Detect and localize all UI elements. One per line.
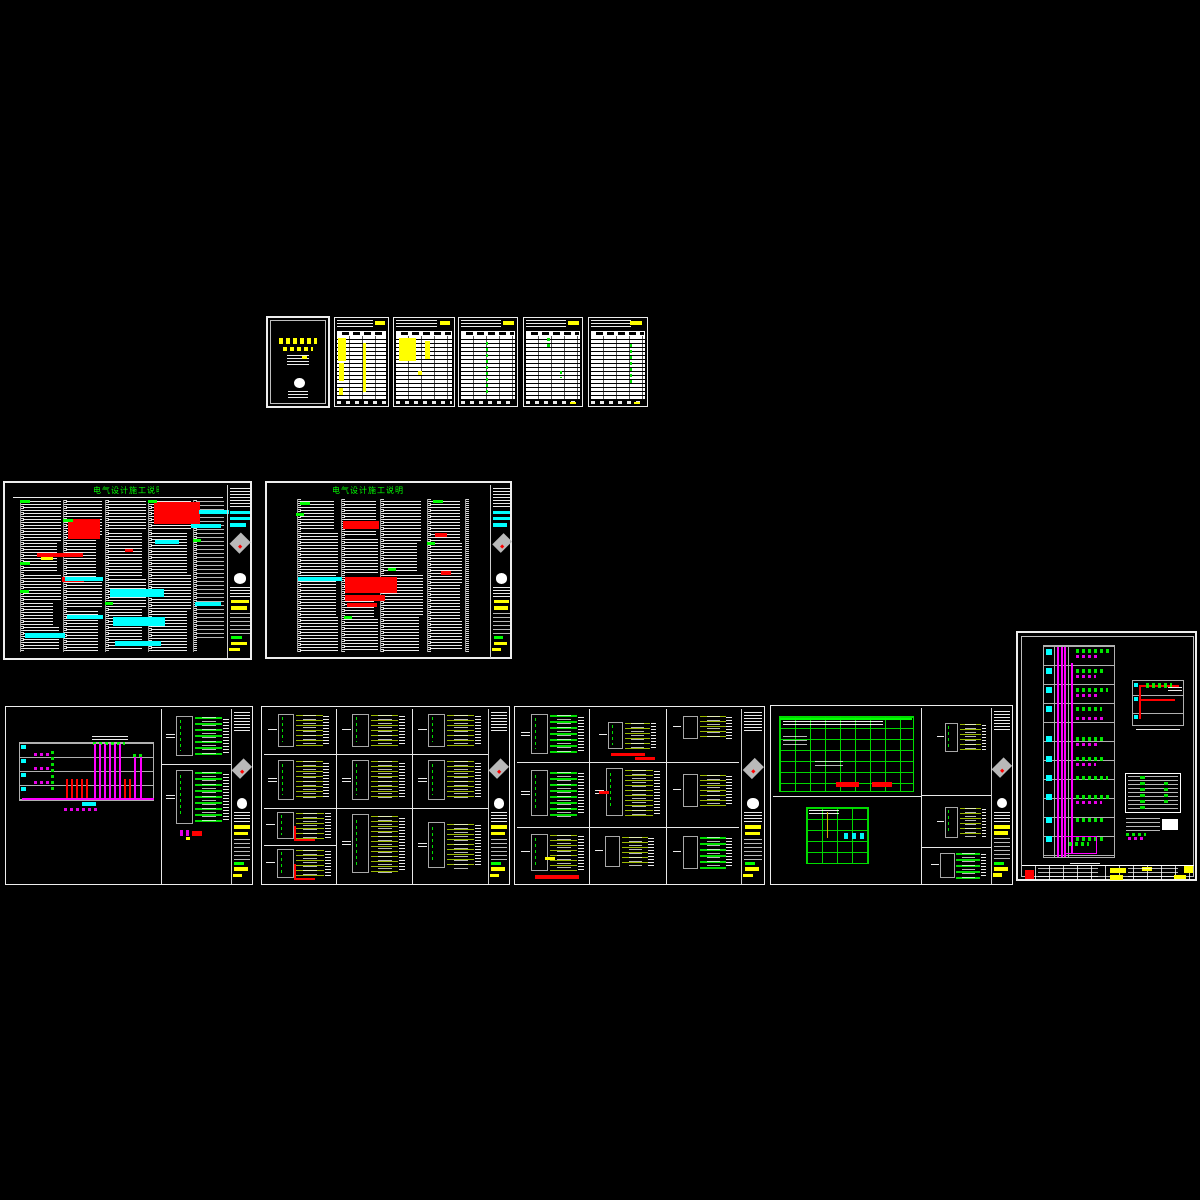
grid-line (773, 796, 921, 797)
feeder-label (266, 862, 275, 865)
detail-labels (1168, 687, 1182, 691)
load-labels (578, 836, 584, 870)
table-header-text (526, 320, 565, 330)
floor-tag (21, 759, 26, 763)
circuit-labels (454, 824, 468, 869)
feeder-label (595, 850, 603, 853)
breaker-ticks (356, 820, 357, 866)
circuit-labels (303, 761, 317, 801)
panel-diagram[interactable] (418, 713, 482, 749)
load-labels (399, 763, 405, 800)
riser-trunk (1061, 647, 1063, 857)
breaker-ticks (687, 839, 688, 864)
sheet-power-riser[interactable] (5, 706, 253, 885)
panel-diagram[interactable] (521, 833, 585, 873)
highlight-cells-green (547, 338, 549, 348)
detail-tag (1134, 697, 1138, 701)
grid-line (264, 845, 336, 846)
grid-line (264, 808, 488, 809)
panel-diagram[interactable] (342, 759, 406, 803)
notes-text (430, 585, 460, 619)
circuit-labels (631, 723, 644, 750)
table-header-text (591, 320, 630, 330)
panel-diagram[interactable] (268, 713, 330, 749)
riser-branch (34, 753, 50, 756)
load-labels (323, 763, 329, 800)
grid-line (264, 754, 488, 755)
sheet-panel-schematics-2[interactable] (514, 706, 765, 885)
highlight-bar (494, 642, 508, 645)
floor-box (1046, 794, 1052, 800)
highlight-cells (399, 338, 416, 361)
riser-feeder (119, 744, 121, 799)
titleblock-text (491, 812, 507, 823)
breaker-ticks (612, 725, 613, 745)
titleblock-text (1038, 868, 1098, 878)
panel-box (277, 849, 294, 878)
table-header-text (396, 320, 437, 330)
floor-tag (21, 787, 26, 791)
breaker-ticks (356, 764, 357, 795)
company-logo-icon (494, 798, 504, 809)
highlight-bar (230, 511, 250, 514)
feeder-label (673, 789, 681, 792)
riser-feeder (140, 757, 142, 799)
highlight-bar (41, 557, 53, 560)
circuit-labels (707, 775, 720, 807)
highlight-bar (503, 321, 513, 325)
highlight-cells (339, 363, 344, 381)
highlight-bar (493, 517, 511, 520)
sheet-drawing-index-2[interactable] (393, 317, 455, 407)
company-logo-icon (747, 798, 758, 809)
cyan-highlight (195, 602, 221, 606)
circuit-labels (454, 761, 468, 801)
breaker-ticks (687, 777, 688, 802)
highlight-cells-green (1140, 776, 1145, 810)
titleblock-text (744, 839, 762, 860)
floor-box (1046, 687, 1052, 693)
red-mark (345, 595, 385, 601)
notes-text (108, 501, 146, 531)
feeder-label (673, 726, 681, 728)
highlight-bar (490, 874, 498, 878)
panel-box (352, 814, 369, 873)
title-block (490, 485, 512, 658)
panel-diagram[interactable] (937, 722, 987, 754)
titleblock-text (234, 712, 250, 733)
panel-box (531, 770, 548, 816)
revision-cloud-red (343, 521, 379, 529)
panel-diagram[interactable] (673, 773, 733, 809)
green-mark (344, 616, 352, 619)
notes-text (23, 575, 61, 601)
sheet-drawing-index-1[interactable] (334, 317, 389, 407)
highlight-cells (425, 341, 430, 359)
riser-feeder (94, 744, 96, 799)
red-wire (1139, 699, 1175, 701)
floor-tag (21, 773, 26, 777)
grid-line (517, 827, 739, 828)
panel-box (940, 853, 955, 879)
circuit-labels (707, 716, 720, 739)
sheet-equipment-table-1[interactable] (458, 317, 518, 407)
breaker-ticks (180, 775, 181, 816)
panel-box (683, 836, 699, 869)
grid-line (517, 762, 739, 763)
sheet-spec-notes-2[interactable]: 电气设计施工说明(二) (265, 481, 512, 659)
lv-labels (783, 736, 807, 746)
riser-bus (22, 798, 154, 800)
feeder-label (266, 824, 275, 827)
riser-bus-label (82, 802, 96, 806)
feeder-label (937, 821, 944, 824)
riser-caption (64, 808, 98, 811)
highlight-cells-green (1164, 782, 1168, 806)
notes-text (344, 501, 376, 537)
grid-line (589, 709, 590, 884)
highlight-cells (418, 371, 422, 375)
sheet-lv-main-diagram[interactable] (770, 705, 1013, 885)
highlight-bar (230, 523, 246, 526)
green-mark (300, 502, 310, 505)
load-labels (475, 825, 481, 867)
floor-annotation (1076, 707, 1102, 711)
notes-text (196, 501, 224, 641)
notes-text (66, 579, 102, 609)
highlight-bar (1184, 866, 1193, 873)
sheet-elv-riser[interactable] (1016, 631, 1197, 881)
notes-text (23, 501, 61, 541)
sheet-cover[interactable] (266, 316, 330, 408)
highlight-bar (994, 867, 1007, 871)
circuit-labels (378, 761, 392, 801)
stamp-red-icon (1025, 870, 1034, 879)
detail-annotation (1069, 842, 1089, 846)
circuit-labels (202, 772, 216, 824)
red-mark (836, 782, 859, 787)
feeder-label (166, 734, 175, 738)
stamp-dot-icon (752, 769, 756, 773)
table-body (526, 336, 581, 399)
company-logo-icon (234, 573, 246, 583)
grid-line (921, 847, 991, 848)
cyan-arrows (844, 833, 866, 839)
green-mark (296, 513, 304, 516)
load-labels (648, 838, 653, 867)
notes-text (383, 617, 419, 651)
floor-annotation (1076, 818, 1106, 822)
load-labels (223, 774, 229, 823)
feeder-label (937, 736, 944, 739)
cyan-highlight (67, 615, 103, 619)
stamp-diamond-icon (489, 758, 509, 778)
detail-caption (1136, 729, 1180, 732)
feeder-label (342, 778, 351, 782)
highlight-bar (231, 636, 242, 639)
titleblock-text (744, 712, 762, 733)
circuit-labels (557, 835, 571, 871)
riser-feeder-red (71, 779, 73, 799)
load-labels (651, 723, 656, 748)
highlight-bar (492, 648, 501, 651)
panel-diagram[interactable] (937, 806, 987, 840)
cyan-highlight (25, 633, 65, 638)
panel-diagram[interactable] (673, 715, 733, 741)
lv-labels (809, 810, 839, 815)
panel-diagram[interactable] (166, 715, 230, 759)
load-labels (578, 717, 584, 754)
breaker-ticks (432, 764, 433, 795)
stamp-dot-icon (497, 769, 501, 773)
feeder-label (521, 732, 530, 736)
grid-line (161, 764, 231, 765)
lv-main-oneline (779, 716, 914, 792)
riser-feeder-red (124, 779, 126, 799)
panel-box (428, 760, 445, 800)
highlight-cells (339, 388, 343, 394)
highlight-bar (570, 402, 576, 405)
breaker-ticks (610, 773, 611, 810)
detail-magenta (180, 830, 190, 836)
cover-subtitle-line (283, 347, 313, 351)
stamp-dot-icon (239, 544, 243, 548)
floor-annotation (1076, 688, 1108, 692)
feeder-label (521, 851, 530, 855)
breaker-ticks (432, 717, 433, 742)
riser-rail (1068, 645, 1069, 858)
green-mark (148, 500, 157, 503)
panel-box (278, 714, 294, 747)
panel-diagram[interactable] (521, 769, 585, 819)
breaker-ticks (282, 764, 283, 795)
circuit-labels (557, 715, 571, 755)
notes-text (430, 621, 462, 651)
panel-diagram[interactable] (595, 835, 655, 869)
lv-labels (783, 721, 883, 726)
stamp-diamond-icon (992, 757, 1012, 777)
titleblock-text (230, 488, 249, 509)
floor-annotation (1076, 655, 1100, 658)
notes-text (23, 603, 53, 625)
floor-annotation (1076, 763, 1096, 766)
feeder-label (673, 851, 681, 854)
title-strip (1022, 865, 1194, 880)
riser-feeder (134, 757, 136, 799)
cyan-highlight (110, 589, 164, 597)
highlight-bar (491, 832, 505, 836)
company-logo-icon (237, 798, 247, 809)
riser-trunk (1057, 647, 1059, 857)
highlight-cells (338, 338, 345, 361)
floor-annotation (1076, 675, 1096, 678)
notes-text (66, 537, 96, 577)
panel-diagram-red[interactable] (266, 848, 332, 880)
panel-diagram[interactable] (418, 821, 482, 871)
revision-cloud-red (345, 577, 397, 593)
titleblock-text (1128, 868, 1178, 879)
highlight-bar (375, 321, 385, 325)
cad-model-space[interactable]: 电气设计施工说明(一) (0, 0, 1200, 1200)
load-labels (475, 716, 481, 746)
detail-tag (1134, 715, 1138, 719)
floor-annotation (1076, 717, 1104, 720)
riser-feeder-red (81, 779, 83, 799)
red-mark (347, 603, 377, 607)
cover-footer-rows (288, 391, 307, 400)
legend-table (1125, 773, 1181, 813)
load-labels (323, 716, 329, 746)
floor-box (1046, 668, 1052, 674)
green-mark (63, 519, 73, 522)
load-labels (325, 851, 331, 878)
stamp-diamond-icon (229, 533, 250, 554)
breaker-ticks (948, 726, 949, 748)
sheet-equipment-table-3[interactable] (588, 317, 648, 407)
floor-box (1046, 836, 1052, 842)
highlight-bar (1110, 868, 1126, 873)
highlight-bar (493, 511, 511, 514)
panel-box (277, 812, 294, 840)
titleblock-text (994, 812, 1010, 823)
titleblock-text (234, 812, 250, 823)
panel-box (176, 716, 193, 756)
riser-feeder (114, 744, 116, 799)
riser-feeder-red (129, 779, 131, 799)
panel-diagram[interactable] (166, 769, 230, 827)
load-labels (399, 716, 405, 746)
panel-diagram[interactable] (418, 759, 482, 803)
panel-box (683, 716, 699, 740)
floor-box (1046, 706, 1052, 712)
cyan-highlight (199, 510, 229, 514)
panel-box (352, 714, 369, 747)
panel-diagram[interactable] (673, 835, 733, 871)
sheet-equipment-table-2[interactable] (523, 317, 583, 407)
title-block (741, 709, 764, 884)
grid-line (161, 709, 162, 884)
highlight-bar (234, 832, 248, 836)
table-footer (396, 401, 452, 404)
grid-line (921, 795, 991, 796)
circuit-labels (303, 850, 318, 879)
lv-bus (780, 718, 912, 720)
load-labels (654, 771, 660, 815)
breaker-ticks (282, 717, 283, 742)
floor-annotation (1076, 737, 1106, 741)
panel-diagram[interactable] (342, 813, 406, 877)
riser-feeder (109, 744, 111, 799)
cyan-highlight (65, 577, 103, 581)
circuit-labels (965, 724, 976, 753)
feeder-label (268, 729, 277, 732)
panel-diagram[interactable] (931, 852, 987, 880)
green-mark (105, 602, 113, 605)
green-mark (20, 590, 29, 593)
highlight-bar (994, 862, 1003, 865)
floor-annotation (1076, 795, 1112, 799)
notes-text (300, 501, 334, 531)
title-block (991, 708, 1012, 884)
panel-box (945, 723, 958, 752)
notes-text (108, 533, 142, 577)
breaker-ticks (535, 718, 536, 749)
notes-text (300, 617, 338, 651)
highlight-bar (745, 825, 762, 829)
stamp-diamond-icon (743, 758, 764, 779)
titleblock-text (493, 488, 510, 509)
circuit-labels (557, 772, 571, 817)
riser-branch-ticks (51, 751, 54, 791)
panel-box (428, 822, 445, 868)
titleblock-text (491, 839, 508, 860)
green-mark (193, 539, 201, 542)
highlight-cells-green (630, 344, 632, 384)
breaker-ticks (944, 855, 945, 874)
highlight-bar (231, 600, 249, 603)
wire-yellow (827, 812, 828, 838)
sheet-spec-notes-1[interactable]: 电气设计施工说明(一) (3, 481, 252, 660)
riser-labels (92, 736, 128, 741)
highlight-bar (1174, 875, 1186, 879)
panel-diagram-red[interactable] (266, 811, 332, 841)
highlight-bar (745, 867, 760, 871)
breaker-ticks (281, 815, 282, 835)
table-body (461, 336, 516, 399)
stamp-diamond-icon (492, 533, 512, 553)
green-mark (427, 542, 435, 545)
highlight-bar (634, 402, 640, 405)
circuit-labels (632, 770, 647, 817)
panel-box (278, 760, 294, 800)
riser-feeder-red (76, 779, 78, 799)
stamp-dot-icon (240, 769, 244, 773)
riser-rail (1054, 645, 1055, 858)
breaker-ticks (687, 718, 688, 736)
green-mark (433, 500, 443, 503)
titleblock-text (493, 587, 510, 597)
riser-feeder-red (66, 779, 68, 799)
highlight-bar (994, 831, 1008, 835)
feeder-label (931, 864, 939, 867)
highlight-bar (494, 636, 504, 639)
sheet-panel-schematics-1[interactable] (261, 706, 510, 885)
panel-diagram[interactable] (599, 721, 657, 751)
cover-title-line (279, 338, 317, 344)
notes-text (300, 575, 336, 615)
highlight-bar (231, 606, 247, 609)
highlight-cells-green (486, 342, 488, 395)
detail-tag (1134, 683, 1138, 687)
circuit-labels (202, 717, 216, 757)
detail-red (192, 831, 202, 836)
lv-labels (815, 761, 843, 768)
panel-diagram[interactable] (521, 713, 585, 757)
panel-box (531, 714, 548, 754)
floor-box (1046, 649, 1052, 655)
circuit-labels (303, 813, 318, 840)
company-logo-icon (294, 378, 305, 389)
highlight-bar (491, 867, 504, 871)
load-labels (475, 763, 481, 800)
panel-diagram[interactable] (342, 713, 406, 749)
breaker-ticks (432, 827, 433, 862)
floor-box (1046, 736, 1052, 742)
panel-diagram[interactable] (268, 759, 330, 803)
feeder-label (599, 734, 607, 737)
riser-branch (34, 767, 50, 770)
highlight-bar (229, 648, 239, 651)
